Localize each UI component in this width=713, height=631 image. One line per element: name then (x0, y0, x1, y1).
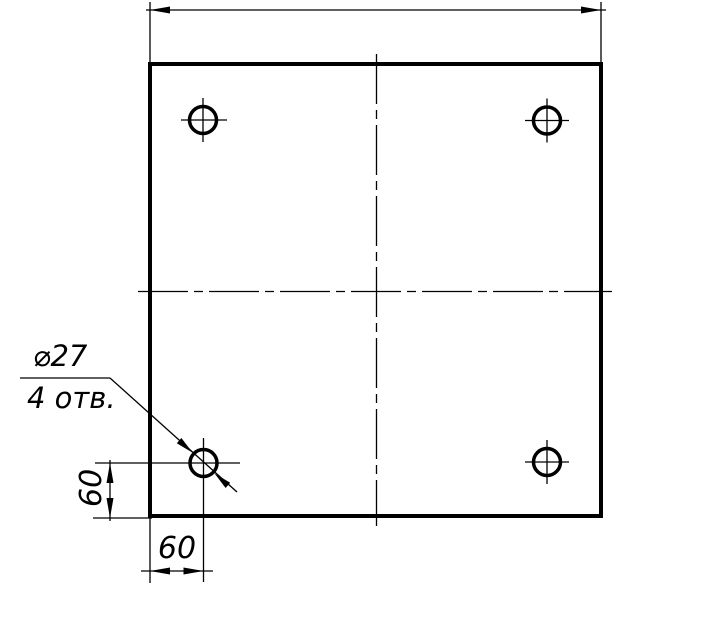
horizontal-offset-dim-label: 60 (158, 531, 196, 566)
drawing-canvas: 60 60 ⌀27 4 отв. (0, 0, 713, 631)
overall-dim-arrow-left-icon (150, 7, 170, 14)
hole-diameter-label: ⌀27 (33, 339, 88, 373)
overall-dim-arrow-right-icon (581, 7, 601, 14)
horizontal-dim-arrow-right-icon (184, 568, 204, 575)
horizontal-dim-arrow-left-icon (150, 568, 170, 575)
engineering-drawing: 60 60 ⌀27 4 отв. (0, 0, 713, 631)
holes-count-label: 4 отв. (27, 381, 116, 415)
plate-outline (150, 64, 601, 516)
vertical-offset-dim-label: 60 (74, 469, 109, 507)
